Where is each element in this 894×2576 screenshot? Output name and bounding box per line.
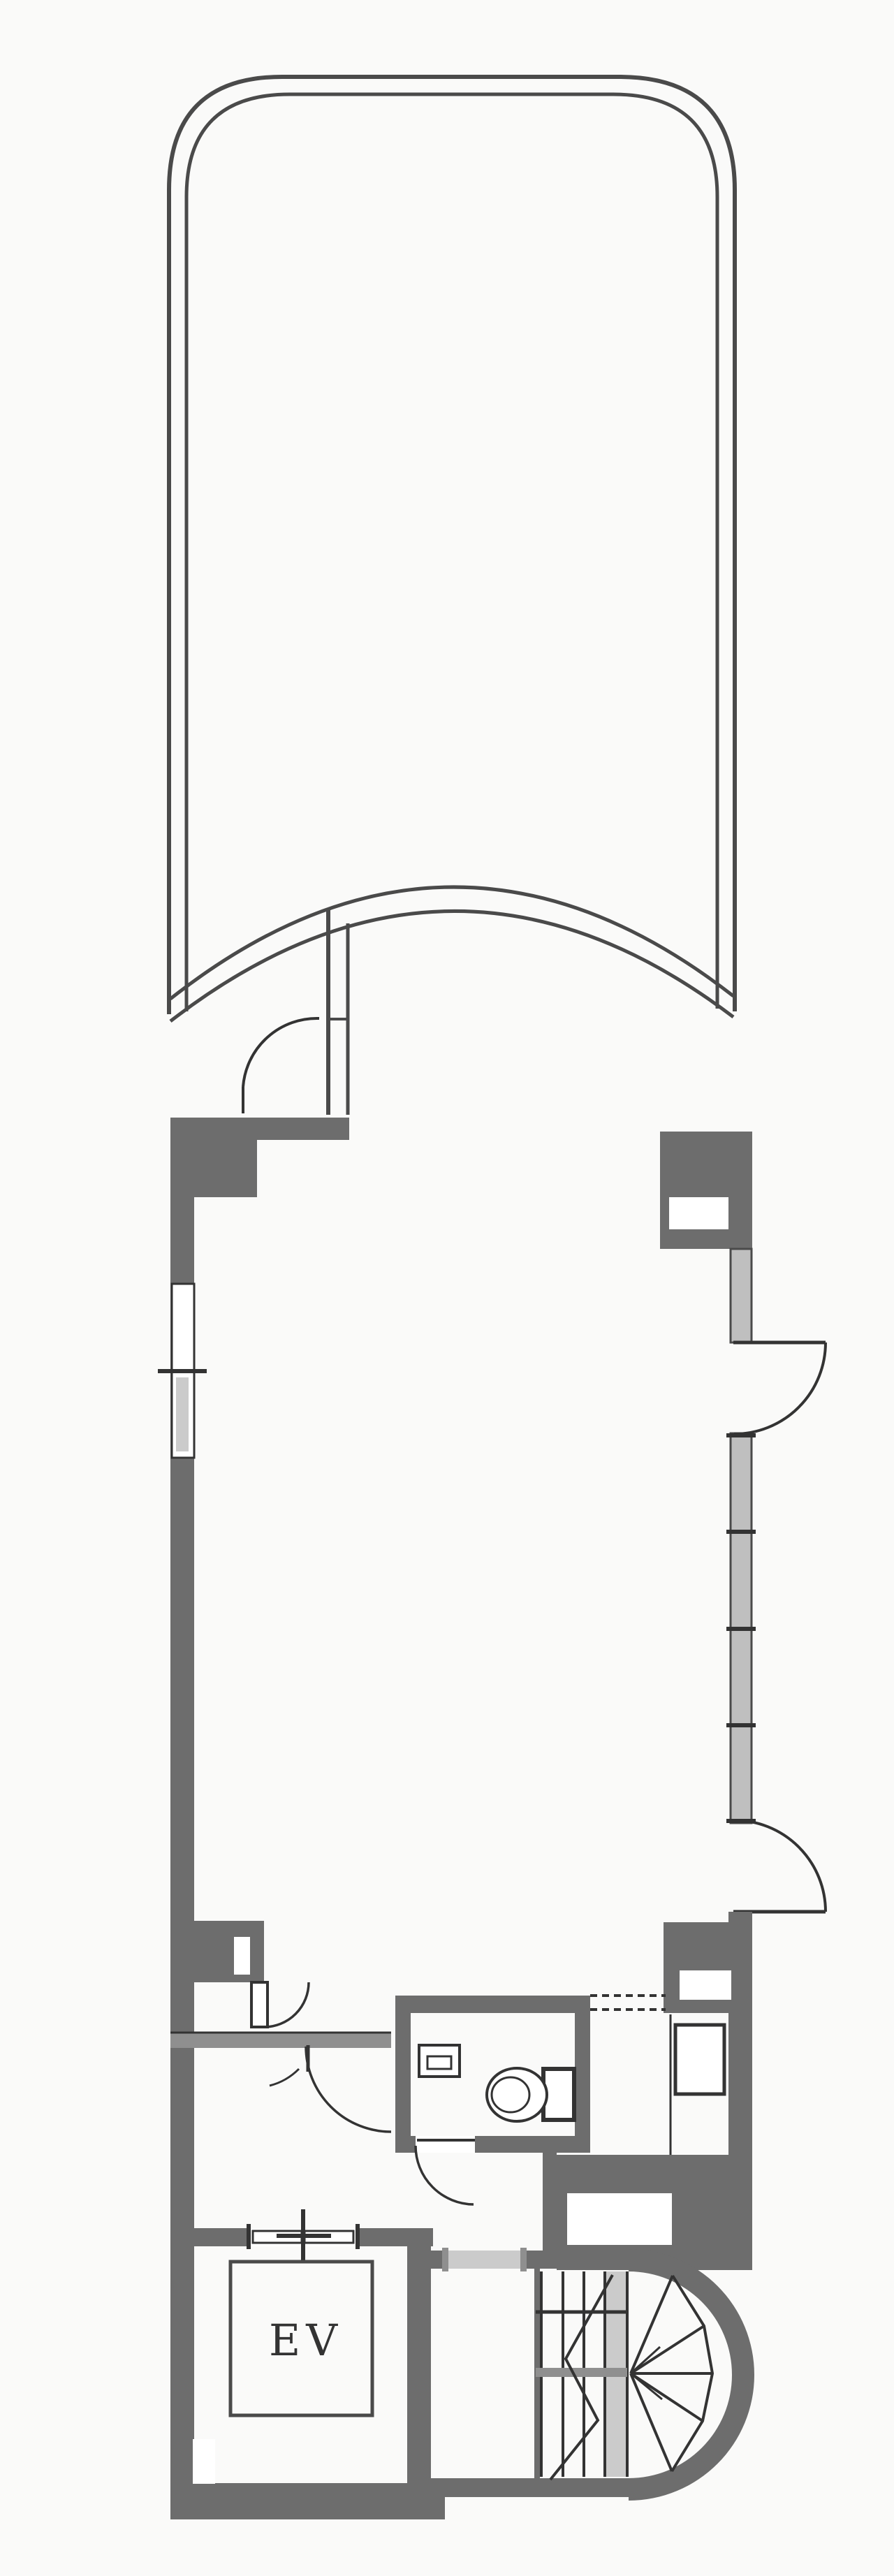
floor-plan: EV (0, 0, 894, 2576)
closet-opening (234, 1937, 250, 1975)
overhead-dashed-lines (590, 1996, 666, 2010)
room-bottom-wall (170, 2033, 391, 2048)
ev-corner-notch (193, 2439, 215, 2484)
left-wall-window (158, 1284, 207, 1458)
elevator: EV (170, 2209, 445, 2519)
utility-fixture (675, 2025, 724, 2094)
right-wall (726, 1249, 756, 1823)
door-swing-arc (734, 1342, 826, 1434)
hall-door (270, 2045, 391, 2132)
sink (419, 2045, 460, 2077)
hall-door-small-arc (270, 2069, 299, 2086)
curved-window-band (170, 887, 733, 1021)
balcony-partition (328, 908, 348, 1115)
stair-entry-opening (448, 2251, 520, 2269)
pillar (660, 1132, 752, 1249)
right-block-window (680, 1970, 731, 2000)
ev-bottom-wall (170, 2483, 445, 2519)
stair-bottom-wall (431, 2478, 633, 2497)
balcony-inner-line (186, 94, 717, 1011)
door-swing-arc (734, 1820, 826, 1912)
balcony-door-swing-arc (243, 1018, 319, 1087)
balcony-railing (169, 77, 735, 1014)
staircase (431, 2248, 754, 2501)
toilet-door-opening (416, 2136, 475, 2153)
closet-swing-arc (264, 1982, 309, 2027)
closet-leaf (251, 1982, 268, 2027)
stair-winders (631, 2276, 712, 2471)
toilet-door-swing-arc (416, 2146, 474, 2204)
toilet-bowl (487, 2068, 574, 2121)
band-inner-arc (170, 911, 733, 1021)
top-wall (170, 1118, 349, 1140)
right-door-lower (733, 1820, 826, 1912)
elevator-label: EV (269, 2315, 343, 2366)
ev-door-center-mark (277, 2209, 331, 2263)
band-outer-arc (170, 887, 733, 999)
balcony-door (243, 1018, 319, 1113)
pillar-notch (669, 1197, 728, 1229)
balcony-outer-line (169, 77, 735, 1014)
main-room-walls (170, 1118, 752, 2519)
corner-window (567, 2193, 672, 2245)
stair-break-line (550, 2275, 613, 2480)
right-door-upper (733, 1342, 826, 1434)
hall-door-swing-arc (306, 2047, 391, 2132)
ev-right-wall (407, 2228, 431, 2487)
stair-mid-landing (536, 2368, 627, 2377)
